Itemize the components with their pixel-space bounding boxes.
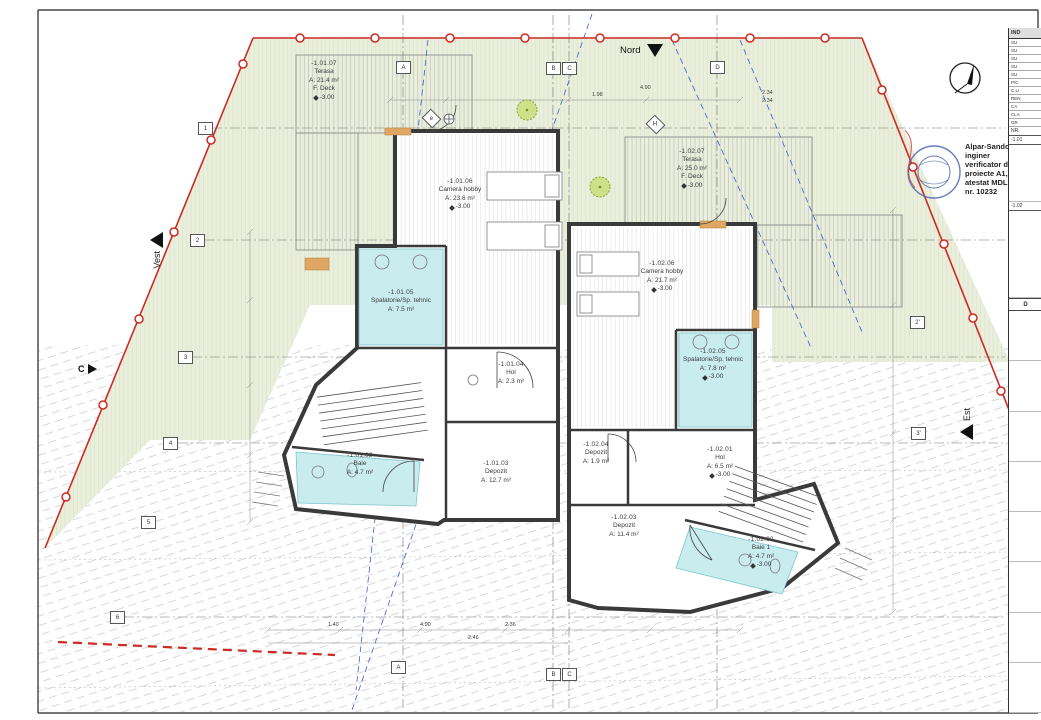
east-label: Est	[962, 408, 972, 421]
index-table-unit1: -1.01	[1009, 136, 1041, 145]
room-label-camera-hobby1: -1.01.06 Camera hobby A: 23.6 m² -3.00	[428, 178, 492, 212]
room-label-camera-hobby2: -1.02.06 Camera hobby A: 21.7 m² -3.00	[630, 260, 694, 294]
dimension-value: 1.98	[592, 92, 603, 98]
grid-marker-bottom-b: B	[546, 668, 561, 681]
diamond-h-label: H	[653, 122, 657, 128]
grid-marker-right-2p: 2'	[910, 316, 925, 329]
section-label: C	[78, 364, 85, 374]
west-label: Vest	[152, 251, 162, 269]
grid-marker-left-6: 6	[110, 611, 125, 624]
grid-marker-left-3: 3	[178, 351, 193, 364]
survey-point-icon	[444, 114, 454, 124]
dimension-value: 1.40	[328, 622, 339, 628]
room-label-hol1: -1.01.04 Hol A: 2.3 m²	[486, 361, 536, 386]
level-marker-icon	[750, 563, 756, 569]
index-table-row: SU	[1009, 63, 1041, 71]
index-table-empty-rows	[1009, 311, 1041, 713]
level-marker-icon	[709, 473, 715, 479]
dimension-value: 2.46	[468, 635, 479, 641]
dimension-value: 4.90	[420, 622, 431, 628]
room-label-spalatorie2: -1.02.05 Spalatorie/Sp. tehnic A: 7.8 m²…	[676, 348, 750, 382]
room-label-depozit2: -1.02.03 Depozit A: 11.4 m²	[596, 514, 652, 539]
index-table-unit2: -1.02	[1009, 202, 1041, 211]
index-table-row: SU	[1009, 39, 1041, 47]
dimension-value: 2.34	[762, 90, 773, 96]
west-arrow-icon	[150, 232, 163, 248]
north-arrow-icon	[647, 44, 663, 57]
grid-marker-bottom-a: A	[391, 661, 406, 674]
east-indicator: Est	[960, 408, 973, 440]
dimension-value: 2.36	[505, 622, 516, 628]
grid-marker-bottom-c: C	[562, 668, 577, 681]
dimension-value: 4.90	[640, 85, 651, 91]
room-label-terasa2: -1.02.07 Terasa A: 25.0 m² F. Deck -3.00	[664, 148, 720, 190]
index-table-spacer	[1009, 211, 1041, 298]
index-table-spacer	[1009, 145, 1041, 202]
diamond-e-label: e	[430, 116, 433, 122]
compass-icon	[950, 63, 980, 93]
level-marker-icon	[681, 183, 687, 189]
index-table-header: IND	[1009, 28, 1041, 39]
room-label-depozit1: -1.01.03 Depozit A: 12.7 m²	[468, 460, 524, 485]
level-marker-icon	[313, 95, 319, 101]
index-table-d: D	[1009, 298, 1041, 311]
grid-marker-top-d: D	[710, 61, 725, 74]
grid-marker-top-c: C	[562, 62, 577, 75]
section-arrow-icon	[88, 364, 97, 374]
room-label-baie1: -1.01.02 Baie A: 4.7 m²	[334, 452, 386, 477]
index-table-row: SU	[1009, 71, 1041, 79]
east-arrow-icon	[960, 424, 973, 440]
room-label-depozit-small2: -1.02.04 Depozit A: 1.9 m²	[572, 441, 620, 466]
index-table-row: CLA	[1009, 111, 1041, 119]
index-table-nr: NR.	[1009, 127, 1041, 136]
index-table-row: CA	[1009, 103, 1041, 111]
room-label-spalatorie1: -1.01.05 Spalatorie/Sp. tehnic A: 7.5 m²	[364, 289, 438, 314]
index-table-row: REN	[1009, 95, 1041, 103]
grid-marker-left-4: 4	[163, 437, 178, 450]
north-indicator: Nord	[620, 44, 663, 57]
sheet-index-table: IND SU SU SU SU SU P/C C.U REN CA CLA GR…	[1008, 28, 1041, 713]
section-marker: C	[78, 364, 97, 374]
grid-marker-left-5: 5	[141, 516, 156, 529]
level-marker-icon	[651, 287, 657, 293]
dimension-value: 2.34	[762, 98, 773, 104]
west-indicator: Vest	[150, 232, 163, 269]
room-label-terasa1: -1.01.07 Terasa A: 21.4 m² F. Deck -3.00	[296, 60, 352, 102]
index-table-row: SU	[1009, 55, 1041, 63]
grid-marker-left-2: 2	[190, 234, 205, 247]
index-table-row: SU	[1009, 47, 1041, 55]
grid-marker-top-b: B	[546, 62, 561, 75]
index-table-row: C.U	[1009, 87, 1041, 95]
grid-marker-right-3p: 3'	[911, 427, 926, 440]
floor-plan-sheet: Nord Vest Est C Alpar-Sandor Kis inginer…	[0, 0, 1041, 720]
room-label-hol2: -1.02.01 Hol A: 6.5 m² -3.00	[694, 446, 746, 480]
grid-marker-left-1: 1	[198, 122, 213, 135]
grid-marker-top-a: A	[396, 61, 411, 74]
room-label-baie2: -1.02.02 Baie 1 A: 4.7 m² -3.00	[734, 536, 788, 570]
plan-drawing	[0, 0, 1041, 720]
level-marker-icon	[449, 205, 455, 211]
north-label: Nord	[620, 45, 641, 56]
index-table-row: GR	[1009, 119, 1041, 127]
index-table-row: P/C	[1009, 79, 1041, 87]
level-marker-icon	[702, 375, 708, 381]
